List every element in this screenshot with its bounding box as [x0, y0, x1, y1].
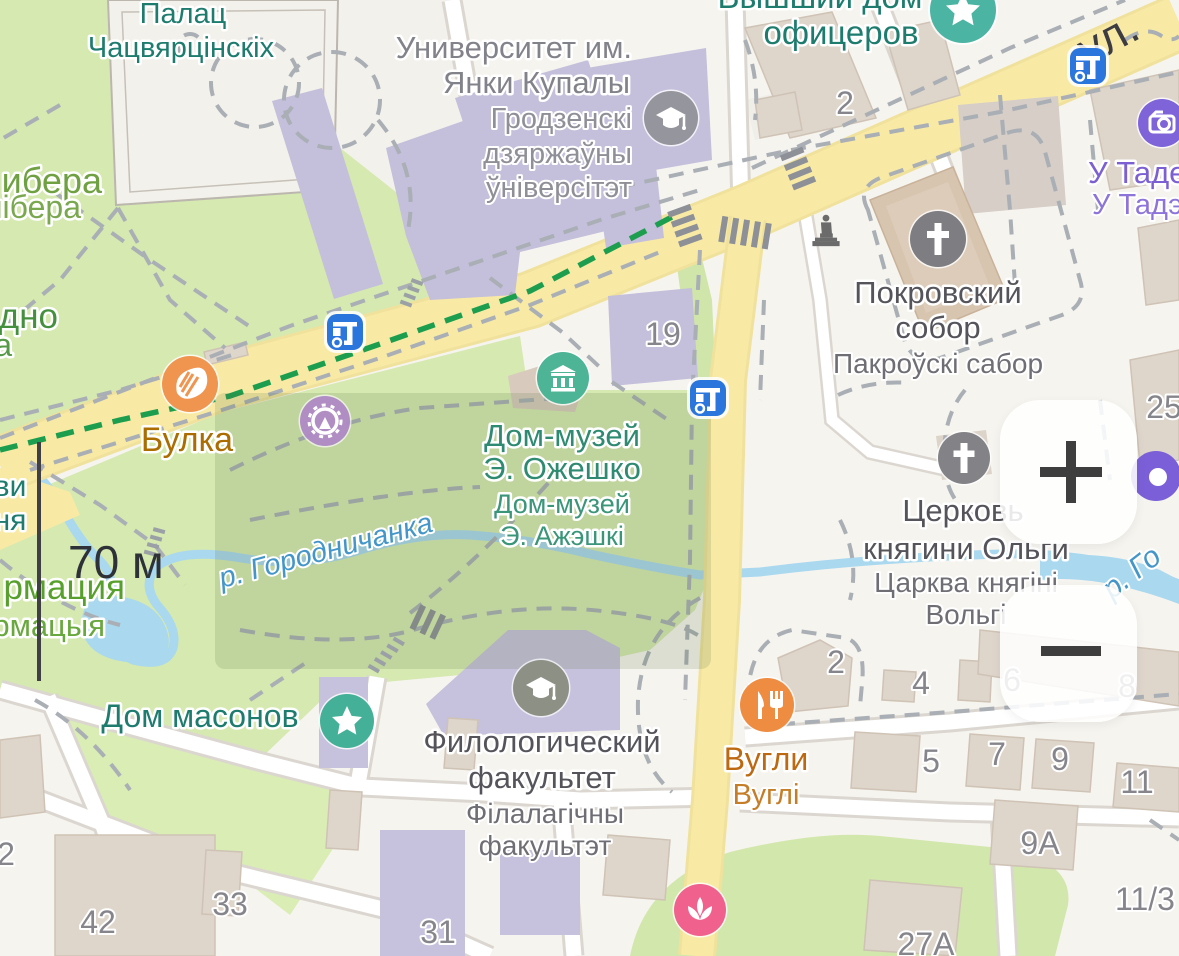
- svg-text:лібера: лібера: [0, 189, 81, 225]
- svg-text:факультэт: факультэт: [479, 830, 612, 861]
- svg-text:Чацвярцінскіх: Чацвярцінскіх: [88, 32, 275, 64]
- svg-text:9: 9: [1051, 741, 1069, 777]
- svg-text:ви: ви: [0, 470, 26, 503]
- svg-text:рмацыя: рмацыя: [0, 608, 105, 643]
- svg-text:Вышший дом: Вышший дом: [717, 0, 922, 15]
- svg-text:19: 19: [645, 316, 681, 352]
- svg-text:2: 2: [827, 644, 845, 680]
- svg-text:Пакроўскі сабор: Пакроўскі сабор: [833, 348, 1043, 379]
- svg-text:Вугли: Вугли: [724, 741, 809, 777]
- svg-text:ня: ня: [0, 504, 26, 537]
- svg-text:Філалагічны: Філалагічны: [466, 798, 624, 829]
- svg-text:Янки Купалы: Янки Купалы: [443, 65, 630, 100]
- svg-text:Э. Ожешко: Э. Ожешко: [483, 451, 641, 486]
- svg-text:27А: 27А: [898, 926, 956, 956]
- svg-text:Дом масонов: Дом масонов: [101, 698, 298, 734]
- svg-text:Покровский: Покровский: [854, 275, 1021, 310]
- svg-text:Вольгі: Вольгі: [926, 599, 1007, 630]
- svg-text:2: 2: [0, 836, 15, 872]
- svg-text:Филологический: Филологический: [423, 724, 660, 759]
- svg-text:11/3: 11/3: [1115, 881, 1175, 917]
- svg-text:дзяржаўны: дзяржаўны: [483, 138, 632, 170]
- svg-text:а: а: [0, 327, 12, 363]
- svg-text:42: 42: [80, 904, 116, 940]
- svg-text:ўніверсітэт: ўніверсітэт: [486, 172, 632, 204]
- svg-text:25: 25: [1146, 389, 1179, 425]
- svg-text:У Таде: У Таде: [1088, 155, 1179, 190]
- svg-text:70 м: 70 м: [68, 536, 164, 588]
- svg-text:7: 7: [988, 736, 1006, 772]
- svg-text:офицеров: офицеров: [763, 14, 918, 51]
- svg-text:Дом-музей: Дом-музей: [484, 418, 640, 453]
- svg-text:Булка: Булка: [141, 421, 233, 459]
- svg-text:11: 11: [1120, 764, 1153, 800]
- svg-text:2: 2: [836, 85, 854, 121]
- svg-text:Университет им.: Университет им.: [396, 30, 632, 65]
- svg-text:5: 5: [922, 743, 940, 779]
- svg-text:Гродзенскі: Гродзенскі: [491, 103, 632, 135]
- svg-text:Э. Ажэшкі: Э. Ажэшкі: [500, 521, 624, 551]
- svg-text:31: 31: [420, 914, 456, 950]
- svg-text:У Тадэ: У Тадэ: [1092, 189, 1179, 221]
- svg-text:Палац: Палац: [140, 0, 227, 30]
- svg-text:Дом-музей: Дом-музей: [494, 489, 630, 519]
- svg-text:9А: 9А: [1020, 825, 1060, 861]
- svg-text:4: 4: [912, 665, 930, 701]
- svg-text:собор: собор: [895, 310, 980, 345]
- svg-text:Вуглі: Вуглі: [733, 779, 800, 811]
- svg-text:33: 33: [212, 886, 248, 922]
- svg-text:факультет: факультет: [468, 760, 616, 795]
